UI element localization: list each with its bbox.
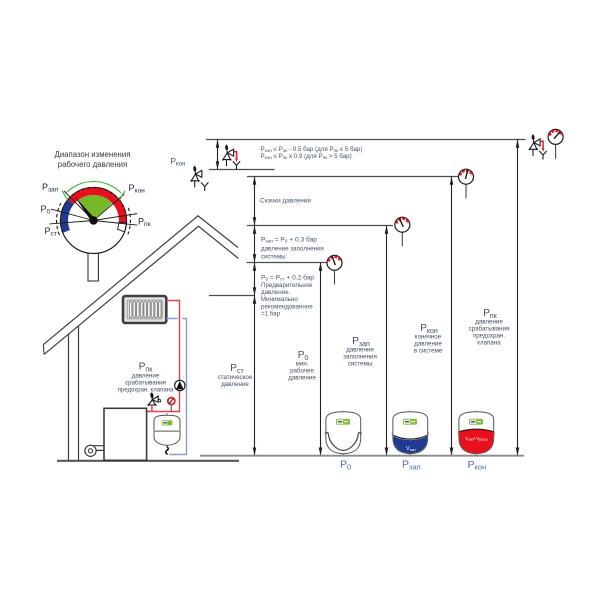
svg-text:предохран.: предохран. bbox=[473, 333, 505, 340]
svg-text:Скачки давления: Скачки давления bbox=[260, 198, 311, 205]
svg-text:давление.: давление. bbox=[261, 289, 291, 296]
svg-text:рабочее: рабочее bbox=[290, 368, 314, 375]
svg-text:давление: давление bbox=[475, 319, 503, 326]
svg-text:рабочего давления: рабочего давления bbox=[58, 160, 128, 169]
svg-text:Предварительное: Предварительное bbox=[261, 282, 313, 289]
svg-text:давление: давление bbox=[414, 341, 442, 348]
svg-text:давление заполнения: давление заполнения bbox=[261, 245, 324, 252]
svg-text:срабатывания: срабатывания bbox=[469, 326, 510, 333]
svg-text:Ркон ≤ Рпк x 0.9 (для Рпк >: Ркон ≤ Рпк x 0.9 (для Рпк > 5 бар) bbox=[261, 153, 352, 160]
svg-text:системы: системы bbox=[261, 254, 286, 261]
svg-text:мин.: мин. bbox=[296, 361, 309, 368]
svg-text:конечное: конечное bbox=[415, 334, 442, 341]
svg-text:давление: давление bbox=[288, 375, 316, 382]
svg-text:Минимально: Минимально bbox=[261, 296, 298, 303]
svg-text:Vзап: Vзап bbox=[406, 446, 416, 452]
svg-text:системы: системы bbox=[348, 361, 373, 368]
svg-text:статическое: статическое bbox=[218, 374, 253, 381]
svg-text:предохран. клапана: предохран. клапана bbox=[118, 387, 174, 393]
svg-text:срабатывания: срабатывания bbox=[125, 379, 166, 386]
svg-text:Диапазон изменения: Диапазон изменения bbox=[55, 150, 131, 159]
svg-text:давление: давление bbox=[132, 372, 160, 379]
svg-text:клапана: клапана bbox=[477, 340, 501, 347]
svg-text:рекомендованное: рекомендованное bbox=[261, 303, 313, 310]
svg-text:давление: давление bbox=[346, 347, 374, 354]
svg-text:в системе: в системе bbox=[414, 348, 443, 355]
svg-text:заполнения: заполнения bbox=[343, 354, 377, 361]
svg-text:=1 бар: =1 бар bbox=[261, 311, 281, 318]
svg-text:давление: давление bbox=[221, 381, 249, 388]
